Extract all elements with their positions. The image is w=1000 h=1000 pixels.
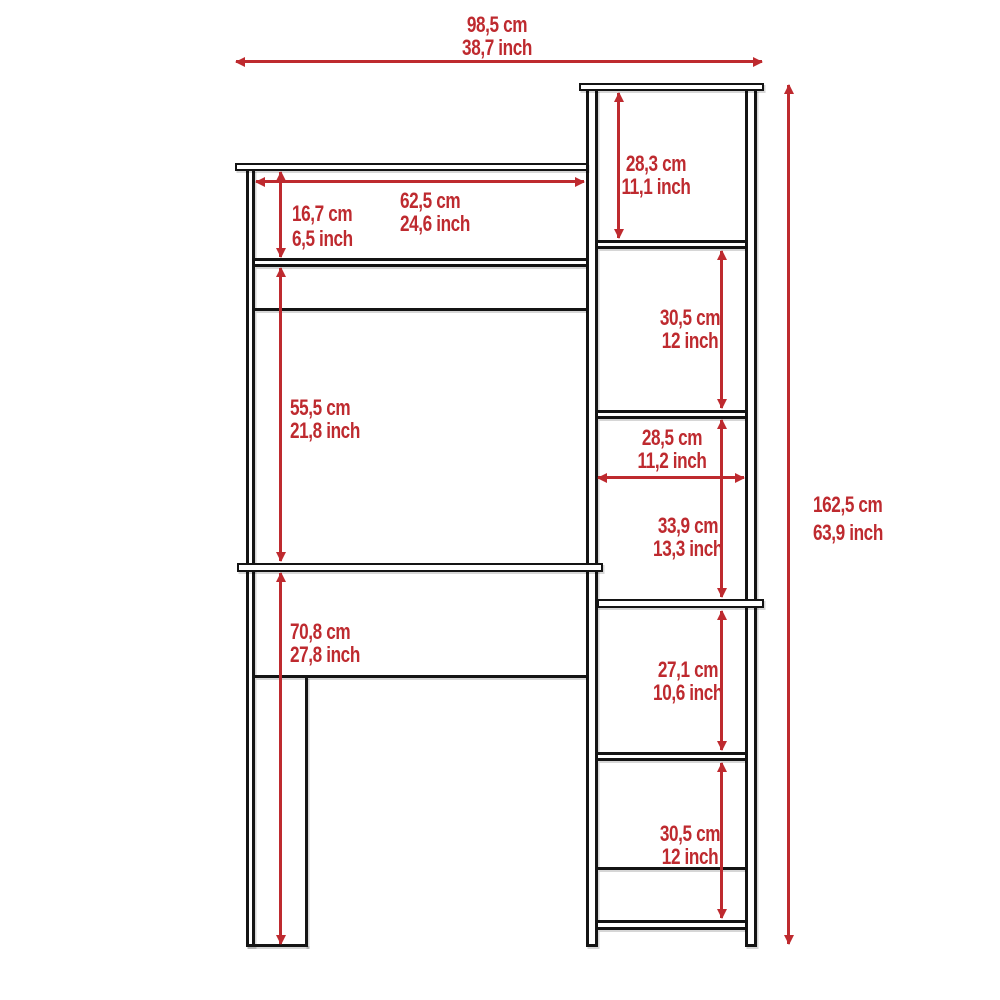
dim-floor-to-desktop-arrow bbox=[279, 573, 282, 944]
dim-overall-width-cm: 98,5 cm bbox=[450, 13, 544, 36]
dim-desk-clearance-cm: 55,5 cm bbox=[290, 396, 360, 419]
dim-cubby-5-label: 30,5 cm 12 inch bbox=[643, 822, 737, 868]
bookcase-shelf-3-protruding bbox=[597, 599, 764, 608]
dim-cubby-2-label: 30,5 cm 12 inch bbox=[643, 306, 737, 352]
bookcase-shelf-1 bbox=[598, 240, 745, 249]
dim-cubby-5-inch: 12 inch bbox=[643, 845, 737, 868]
dim-overall-height-label: 162,5 cm 63,9 inch bbox=[813, 491, 883, 547]
dim-cubby-3-cm: 33,9 cm bbox=[641, 514, 735, 537]
dim-cubby-3-inch: 13,3 inch bbox=[641, 537, 735, 560]
dim-cubby-4-cm: 27,1 cm bbox=[641, 658, 735, 681]
dim-floor-to-desktop-label: 70,8 cm 27,8 inch bbox=[290, 620, 360, 666]
dim-overall-height-arrow bbox=[787, 85, 790, 944]
dim-cubby-2-inch: 12 inch bbox=[643, 329, 737, 352]
bookcase-top-plank bbox=[579, 83, 764, 91]
dim-cubby-1-label: 28,3 cm 11,1 inch bbox=[609, 152, 703, 198]
dim-overall-width-label: 98,5 cm 38,7 inch bbox=[450, 13, 544, 59]
dim-hutch-width-inch: 24,6 inch bbox=[400, 212, 470, 235]
dim-desk-clearance-inch: 21,8 inch bbox=[290, 419, 360, 442]
dim-cubby-3-arrow bbox=[720, 420, 723, 597]
dim-cubby-width-cm: 28,5 cm bbox=[625, 426, 719, 449]
dim-overall-height-cm: 162,5 cm bbox=[813, 491, 883, 519]
desk-left-post bbox=[246, 170, 255, 947]
dim-cubby-width-label: 28,5 cm 11,2 inch bbox=[625, 426, 719, 472]
bookcase-shelf-2 bbox=[598, 410, 745, 419]
dim-overall-width-arrow bbox=[236, 60, 762, 63]
dim-desk-clearance-label: 55,5 cm 21,8 inch bbox=[290, 396, 360, 442]
bookcase-shelf-4 bbox=[598, 752, 745, 761]
dim-cubby-1-cm: 28,3 cm bbox=[609, 152, 703, 175]
hutch-shelf-plank bbox=[255, 258, 586, 267]
dim-hutch-opening-label: 16,7 cm 6,5 inch bbox=[292, 201, 353, 251]
dim-hutch-width-cm: 62,5 cm bbox=[400, 189, 470, 212]
bookcase-left-post bbox=[586, 90, 598, 947]
dim-hutch-opening-inch: 6,5 inch bbox=[292, 226, 353, 251]
dim-cubby-4-inch: 10,6 inch bbox=[641, 681, 735, 704]
dim-hutch-width-label: 62,5 cm 24,6 inch bbox=[400, 189, 470, 235]
desktop-plank bbox=[237, 563, 603, 572]
hutch-top-plank bbox=[235, 163, 588, 171]
dim-desk-clearance-arrow bbox=[279, 268, 282, 561]
dim-overall-width-inch: 38,7 inch bbox=[450, 36, 544, 59]
dim-hutch-width-arrow bbox=[256, 180, 584, 183]
bookcase-right-post bbox=[745, 90, 757, 947]
dim-cubby-2-cm: 30,5 cm bbox=[643, 306, 737, 329]
dim-overall-height-inch: 63,9 inch bbox=[813, 519, 883, 547]
dim-cubby-4-label: 27,1 cm 10,6 inch bbox=[641, 658, 735, 704]
dim-floor-to-desktop-inch: 27,8 inch bbox=[290, 643, 360, 666]
dim-cubby-width-inch: 11,2 inch bbox=[625, 449, 719, 472]
dim-cubby-1-inch: 11,1 inch bbox=[609, 175, 703, 198]
dim-hutch-opening-cm: 16,7 cm bbox=[292, 201, 353, 226]
dim-cubby-5-cm: 30,5 cm bbox=[643, 822, 737, 845]
furniture-dimension-diagram: 98,5 cm 38,7 inch 62,5 cm 24,6 inch 16,7… bbox=[0, 0, 1000, 1000]
desk-leg-inner-line bbox=[305, 677, 308, 947]
hutch-rail-bottom-line bbox=[255, 308, 586, 311]
bookcase-bottom-plank bbox=[598, 920, 745, 930]
dim-cubby-3-label: 33,9 cm 13,3 inch bbox=[641, 514, 735, 560]
dim-hutch-opening-arrow bbox=[279, 172, 282, 257]
dim-floor-to-desktop-cm: 70,8 cm bbox=[290, 620, 360, 643]
